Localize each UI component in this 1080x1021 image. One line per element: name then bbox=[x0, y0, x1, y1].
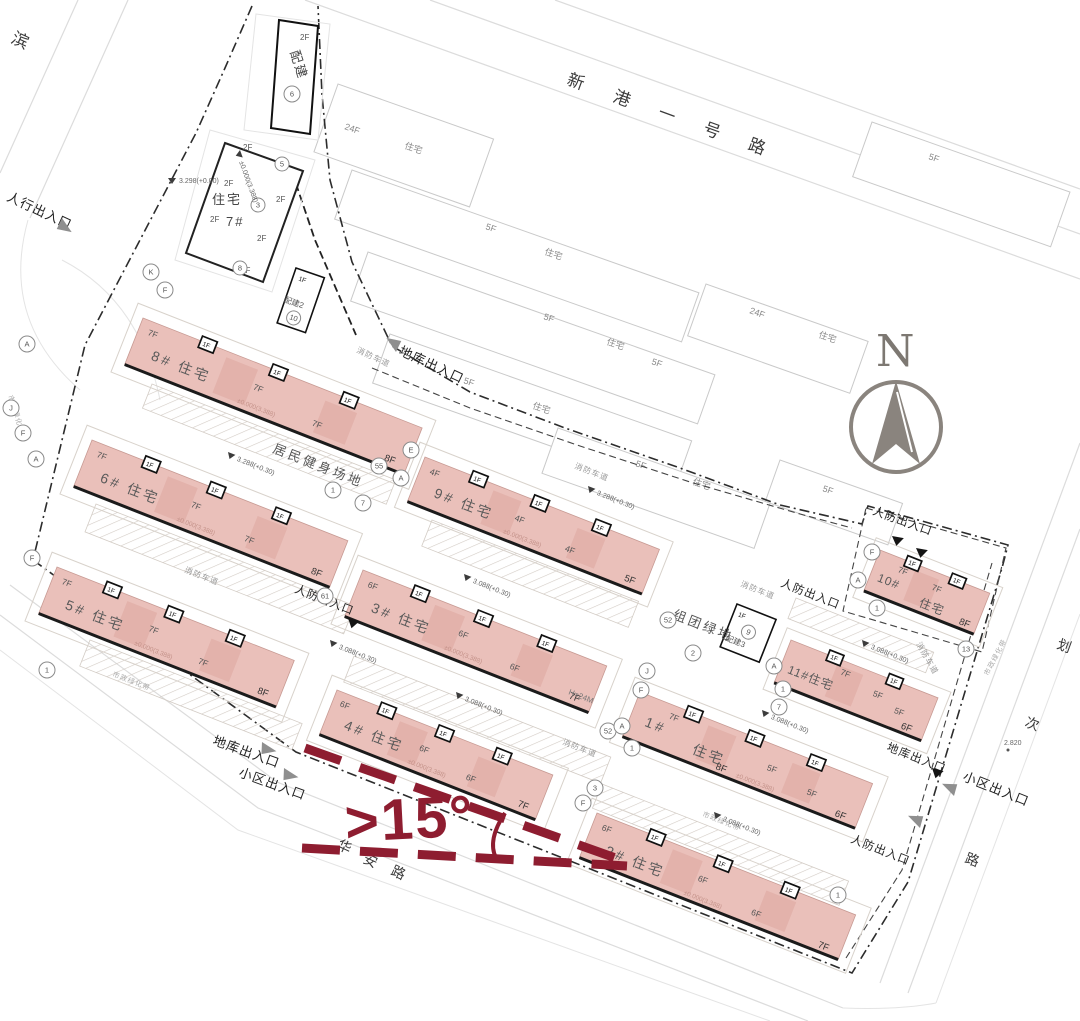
res7-label: 住宅 bbox=[212, 192, 242, 207]
svg-text:号: 号 bbox=[701, 119, 723, 143]
svg-text:3.288(+0.30): 3.288(+0.30) bbox=[236, 456, 276, 477]
svg-text:港: 港 bbox=[611, 87, 633, 111]
svg-text:2F: 2F bbox=[224, 179, 233, 188]
fire-lane-label: 消防车道 bbox=[739, 579, 776, 601]
svg-text:2: 2 bbox=[691, 649, 695, 658]
svg-text:新: 新 bbox=[565, 70, 587, 94]
north-letter: N bbox=[876, 326, 915, 377]
cluster-green-label: 组团绿地 bbox=[671, 607, 736, 644]
svg-text:A: A bbox=[619, 722, 624, 731]
svg-text:A: A bbox=[855, 576, 860, 585]
svg-text:F: F bbox=[21, 429, 26, 438]
peijian1-circle: 6 bbox=[284, 86, 300, 102]
svg-text:7: 7 bbox=[777, 703, 781, 712]
svg-text:J: J bbox=[645, 667, 649, 676]
svg-text:1: 1 bbox=[45, 666, 49, 675]
svg-text:1: 1 bbox=[630, 744, 634, 753]
svg-text:7: 7 bbox=[361, 499, 365, 508]
svg-text:一: 一 bbox=[656, 103, 678, 127]
svg-text:2F: 2F bbox=[210, 215, 219, 224]
svg-text:F: F bbox=[870, 548, 875, 557]
svg-text:1: 1 bbox=[875, 604, 879, 613]
res7-number: 7# bbox=[226, 214, 244, 229]
svg-text:5: 5 bbox=[280, 160, 284, 169]
svg-text:61: 61 bbox=[321, 592, 329, 601]
entrance-arrow-icon bbox=[939, 778, 959, 796]
svg-text:1: 1 bbox=[331, 486, 335, 495]
road-name-right: 划 次 路 bbox=[963, 636, 1074, 870]
svg-text:52: 52 bbox=[604, 727, 612, 736]
svg-text:F: F bbox=[30, 554, 35, 563]
svg-text:2F: 2F bbox=[276, 195, 285, 204]
svg-text:F: F bbox=[581, 799, 586, 808]
angle-value: >15° bbox=[343, 783, 476, 855]
building-peijian1: 配建 2F 6 bbox=[271, 20, 318, 134]
svg-text:K: K bbox=[148, 268, 153, 277]
svg-text:A: A bbox=[24, 340, 29, 349]
svg-text:1: 1 bbox=[836, 891, 840, 900]
svg-text:E: E bbox=[408, 446, 413, 455]
svg-text:A: A bbox=[398, 474, 403, 483]
svg-text:F: F bbox=[163, 286, 168, 295]
entrance-arrow-icon bbox=[890, 536, 903, 547]
site-plan-canvas: 24F 住宅 5F 5F 住宅 5F 住宅 24F 住宅 5F 住宅 5F 5F… bbox=[0, 0, 1080, 1021]
svg-text:路: 路 bbox=[963, 850, 982, 870]
svg-text:划: 划 bbox=[1055, 636, 1074, 656]
svg-text:6: 6 bbox=[290, 90, 294, 99]
svg-text:A: A bbox=[33, 455, 38, 464]
site-plan-drawing: 24F 住宅 5F 5F 住宅 5F 住宅 24F 住宅 5F 住宅 5F 5F… bbox=[0, 0, 1080, 1021]
svg-text:52: 52 bbox=[664, 616, 672, 625]
svg-text:2F: 2F bbox=[243, 143, 252, 152]
svg-text:3: 3 bbox=[593, 784, 597, 793]
road-name-left: 滨 bbox=[8, 28, 31, 52]
svg-text:次: 次 bbox=[1023, 714, 1042, 734]
svg-text:2F: 2F bbox=[300, 33, 309, 42]
svg-text:2.820: 2.820 bbox=[1004, 740, 1022, 747]
svg-text:55: 55 bbox=[375, 462, 383, 471]
civil-defense-entrance-label-se: 人防出入口 bbox=[849, 832, 912, 868]
svg-text:3.088(+0.30): 3.088(+0.30) bbox=[472, 578, 512, 599]
svg-text:路: 路 bbox=[746, 135, 768, 159]
svg-text:1: 1 bbox=[781, 685, 785, 694]
entrance-arrow-icon bbox=[905, 810, 925, 828]
building-peijian2: 1F 配建2 10 bbox=[276, 268, 324, 333]
svg-text:8: 8 bbox=[238, 264, 242, 273]
svg-text:F: F bbox=[639, 686, 644, 695]
svg-text:A: A bbox=[771, 662, 776, 671]
svg-text:3.298(+0.00): 3.298(+0.00) bbox=[179, 178, 219, 185]
svg-text:2F: 2F bbox=[257, 234, 266, 243]
svg-text:13: 13 bbox=[962, 645, 970, 654]
svg-text:J: J bbox=[9, 404, 13, 413]
road-name-top: 新 港 一 号 路 bbox=[565, 70, 768, 159]
community-entrance-label-sw: 小区出入口 bbox=[237, 765, 308, 803]
